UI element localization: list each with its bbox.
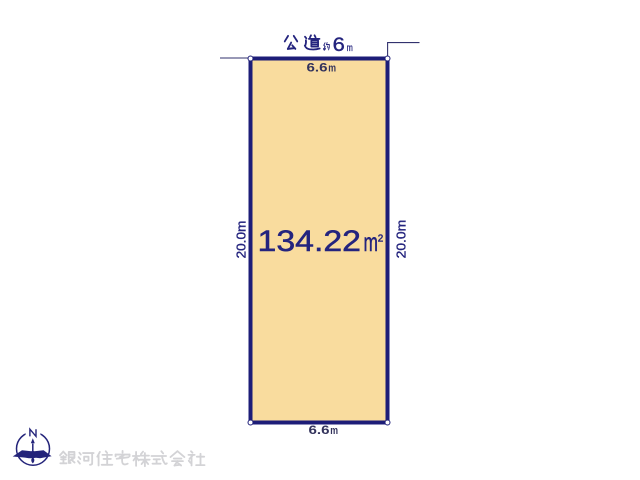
- svg-text:m: m: [347, 43, 353, 54]
- svg-text:20.0m: 20.0m: [235, 221, 249, 259]
- svg-text:2: 2: [378, 233, 384, 245]
- svg-text:20.0m: 20.0m: [395, 220, 409, 259]
- svg-text:6: 6: [333, 34, 345, 56]
- svg-text:134.22: 134.22: [258, 225, 362, 258]
- svg-text:m: m: [364, 227, 379, 257]
- svg-text:m: m: [328, 63, 336, 75]
- svg-text:6.6: 6.6: [309, 425, 330, 437]
- svg-text:6.6: 6.6: [307, 63, 328, 75]
- svg-text:m: m: [330, 425, 338, 437]
